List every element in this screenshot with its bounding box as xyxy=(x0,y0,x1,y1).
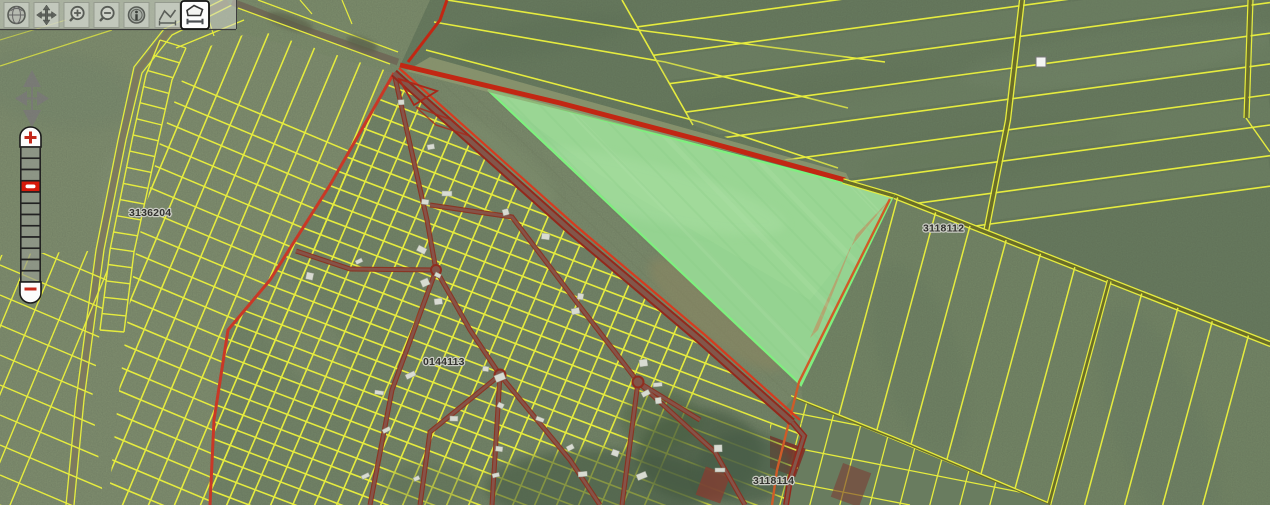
svg-text:3118114: 3118114 xyxy=(753,475,794,487)
svg-text:3136204: 3136204 xyxy=(129,207,171,219)
svg-text:0144113: 0144113 xyxy=(423,356,465,368)
svg-text:3118112: 3118112 xyxy=(923,223,964,235)
